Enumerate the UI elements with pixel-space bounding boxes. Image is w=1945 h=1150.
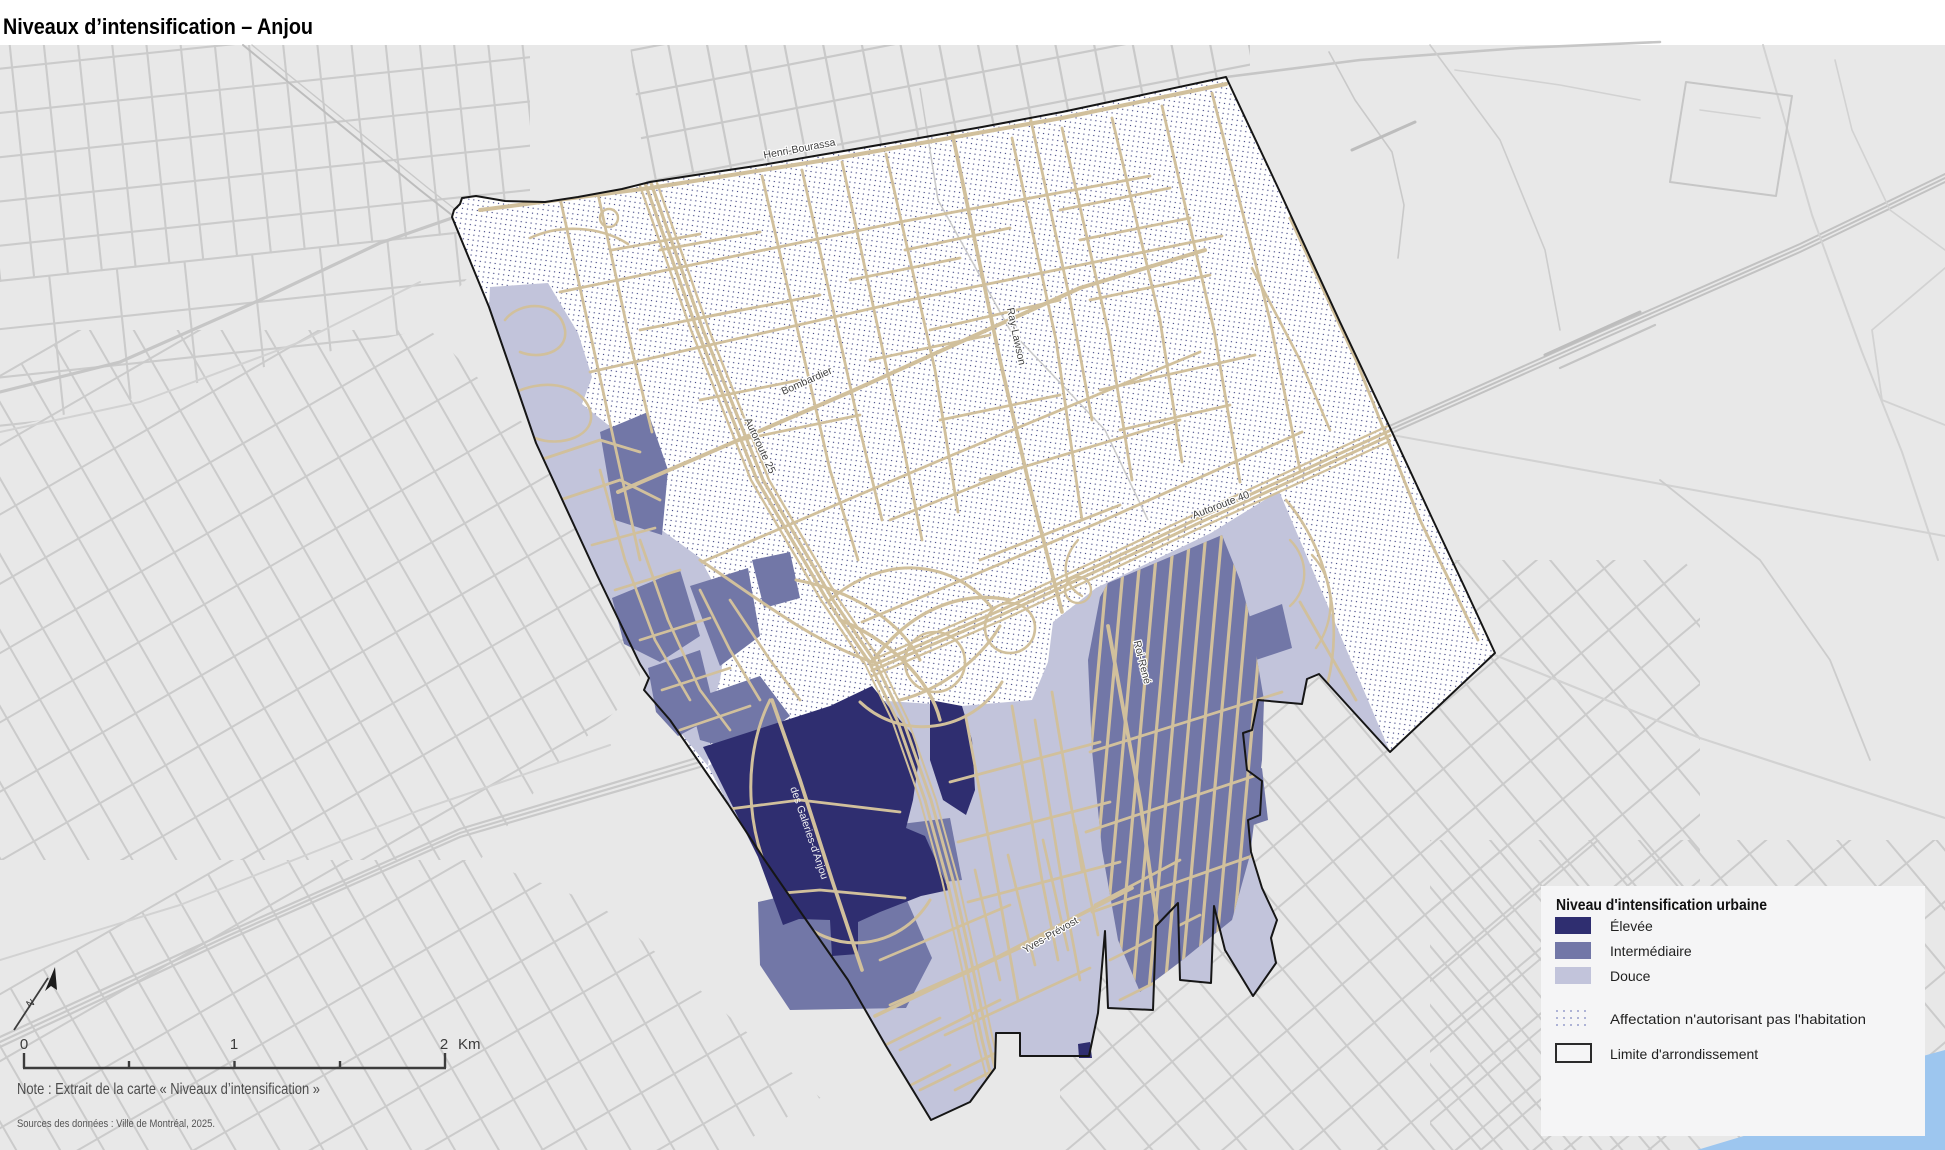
svg-text:Élevée: Élevée — [1610, 918, 1653, 934]
svg-text:Sources des données : Ville de: Sources des données : Ville de Montréal,… — [17, 1118, 215, 1130]
svg-text:Limite d'arrondissement: Limite d'arrondissement — [1610, 1046, 1758, 1062]
svg-text:1: 1 — [230, 1036, 238, 1053]
svg-text:Niveaux d’intensification – An: Niveaux d’intensification – Anjou — [3, 14, 313, 39]
svg-text:Niveau d'intensification urbai: Niveau d'intensification urbaine — [1556, 897, 1767, 914]
svg-text:2: 2 — [440, 1036, 448, 1053]
svg-text:Douce: Douce — [1610, 968, 1651, 984]
svg-text:Km: Km — [458, 1036, 481, 1053]
svg-text:Note : Extrait de la carte « N: Note : Extrait de la carte « Niveaux d’i… — [17, 1081, 320, 1098]
svg-text:Affectation n'autorisant pas l: Affectation n'autorisant pas l'habitatio… — [1610, 1011, 1866, 1027]
svg-text:0: 0 — [20, 1036, 28, 1053]
svg-text:Intermédiaire: Intermédiaire — [1610, 943, 1692, 959]
